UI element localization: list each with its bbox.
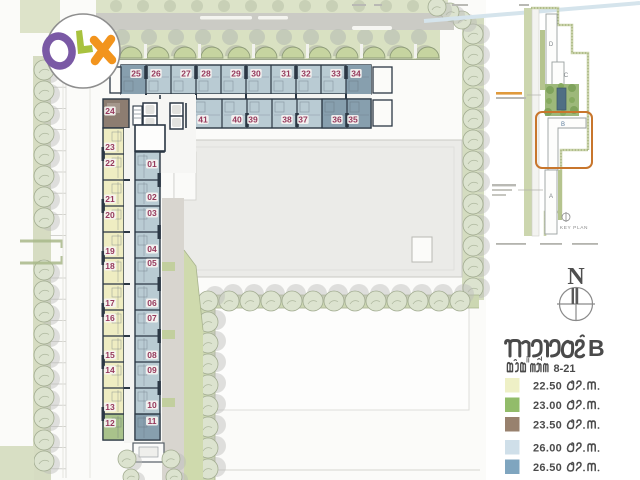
svg-text:40: 40 [232, 115, 242, 125]
svg-text:01: 01 [147, 159, 157, 169]
svg-text:N: N [567, 264, 585, 290]
svg-text:18: 18 [105, 261, 115, 271]
svg-text:A: A [549, 194, 553, 200]
svg-text:KEY PLAN: KEY PLAN [560, 225, 588, 231]
svg-text:06: 06 [147, 298, 157, 308]
svg-text:14: 14 [105, 365, 115, 375]
svg-text:24: 24 [105, 106, 115, 116]
svg-text:38: 38 [282, 115, 292, 125]
svg-text:07: 07 [147, 313, 157, 323]
svg-text:28: 28 [201, 69, 211, 79]
svg-text:22: 22 [105, 158, 115, 168]
svg-text:8-21: 8-21 [554, 363, 576, 375]
svg-text:15: 15 [105, 350, 115, 360]
svg-text:10: 10 [147, 400, 157, 410]
svg-text:26.50: 26.50 [533, 462, 562, 474]
svg-text:26: 26 [151, 69, 161, 79]
svg-text:39: 39 [248, 115, 258, 125]
svg-text:32: 32 [301, 69, 311, 79]
svg-text:23.50: 23.50 [533, 420, 562, 432]
svg-text:19: 19 [105, 246, 115, 256]
svg-text:16: 16 [105, 313, 115, 323]
svg-text:C: C [564, 73, 569, 79]
svg-text:02: 02 [147, 192, 157, 202]
svg-text:30: 30 [251, 69, 261, 79]
svg-text:09: 09 [147, 365, 157, 375]
svg-text:20: 20 [105, 210, 115, 220]
svg-text:05: 05 [147, 258, 157, 268]
svg-text:12: 12 [105, 418, 115, 428]
svg-text:B: B [561, 122, 565, 128]
svg-text:34: 34 [351, 69, 361, 79]
svg-text:03: 03 [147, 208, 157, 218]
svg-text:13: 13 [105, 402, 115, 412]
svg-text:08: 08 [147, 350, 157, 360]
svg-text:26.00: 26.00 [533, 443, 562, 455]
svg-text:04: 04 [147, 244, 157, 254]
svg-text:B: B [588, 335, 605, 361]
svg-text:21: 21 [105, 194, 115, 204]
svg-text:33: 33 [331, 69, 341, 79]
svg-text:31: 31 [281, 69, 291, 79]
svg-text:D: D [549, 42, 554, 48]
svg-text:25: 25 [131, 69, 141, 79]
svg-text:37: 37 [298, 115, 308, 125]
svg-text:36: 36 [332, 115, 342, 125]
svg-text:35: 35 [348, 115, 358, 125]
svg-text:11: 11 [148, 416, 157, 426]
svg-text:23: 23 [105, 142, 115, 152]
svg-text:23.00: 23.00 [533, 400, 562, 412]
svg-text:41: 41 [198, 115, 208, 125]
svg-text:17: 17 [105, 298, 115, 308]
svg-text:22.50: 22.50 [533, 381, 562, 393]
svg-text:27: 27 [181, 69, 191, 79]
svg-text:29: 29 [231, 69, 241, 79]
